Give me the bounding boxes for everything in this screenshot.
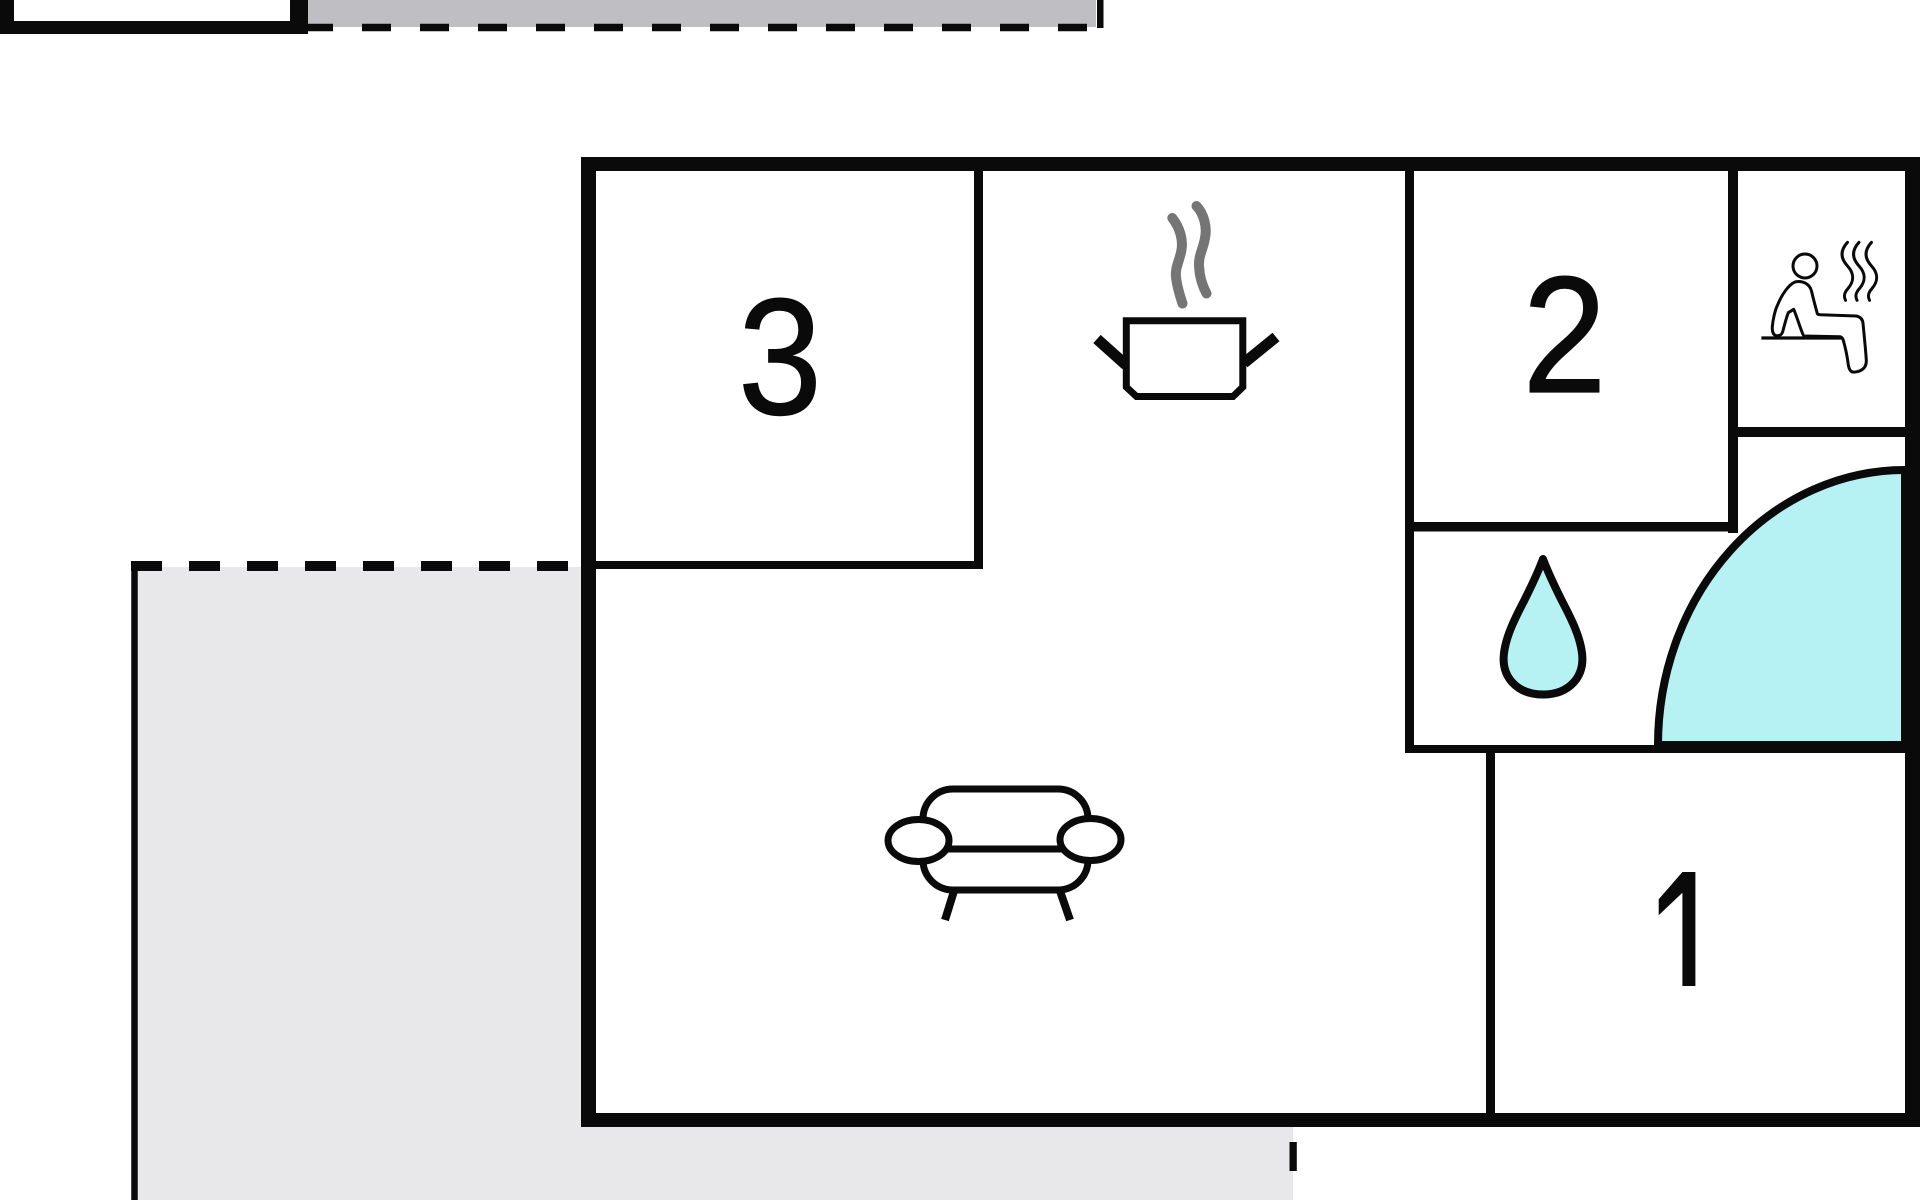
- svg-text:2: 2: [1522, 241, 1606, 427]
- svg-text:3: 3: [738, 263, 822, 449]
